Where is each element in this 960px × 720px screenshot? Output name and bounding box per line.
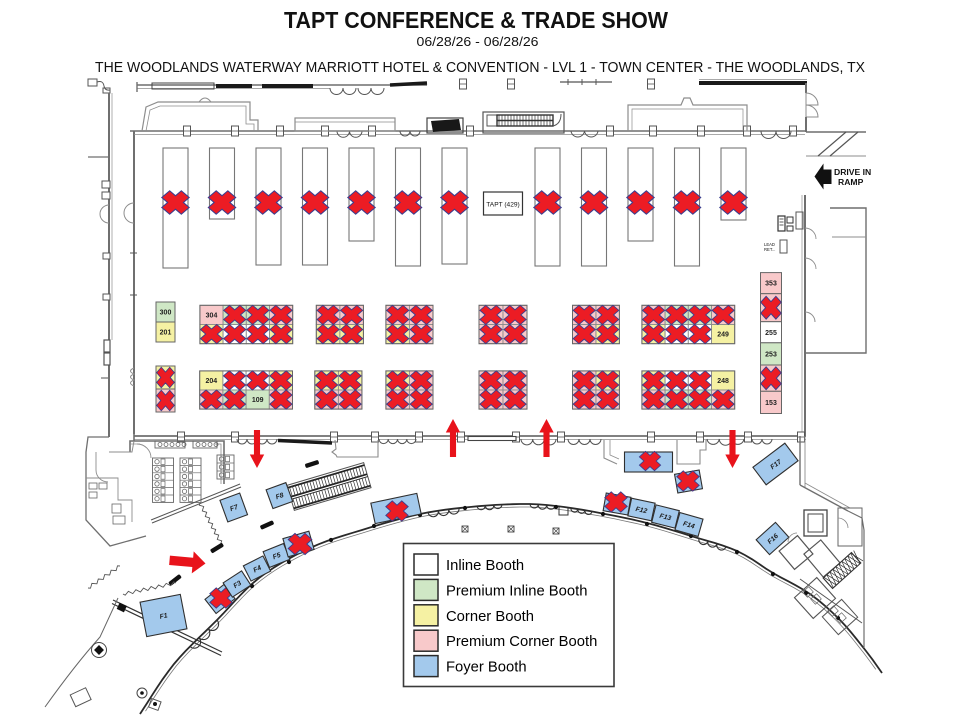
svg-text:204: 204: [205, 378, 217, 385]
svg-text:201: 201: [160, 330, 172, 337]
svg-text:RAMP: RAMP: [838, 177, 864, 187]
svg-text:249: 249: [717, 332, 729, 339]
svg-text:TAPT CONFERENCE & TRADE SHOW: TAPT CONFERENCE & TRADE SHOW: [284, 7, 669, 33]
svg-text:300: 300: [160, 310, 172, 317]
svg-text:RET...: RET...: [764, 247, 775, 252]
svg-text:THE WOODLANDS WATERWAY MARRIOT: THE WOODLANDS WATERWAY MARRIOTT HOTEL & …: [95, 60, 865, 76]
svg-text:06/28/26 - 06/28/26: 06/28/26 - 06/28/26: [417, 34, 539, 49]
svg-text:Inline Booth: Inline Booth: [446, 558, 524, 574]
svg-text:255: 255: [765, 330, 777, 337]
svg-text:253: 253: [765, 351, 777, 358]
svg-text:109: 109: [252, 397, 264, 404]
svg-text:153: 153: [765, 400, 777, 407]
svg-text:Foyer Booth: Foyer Booth: [446, 660, 527, 676]
svg-text:353: 353: [765, 281, 777, 288]
svg-text:DRIVE IN: DRIVE IN: [834, 167, 871, 177]
svg-text:304: 304: [206, 312, 218, 319]
svg-text:Corner Booth: Corner Booth: [446, 609, 534, 625]
svg-text:248: 248: [717, 378, 729, 385]
svg-text:Premium Inline Booth: Premium Inline Booth: [446, 583, 587, 599]
svg-text:TAPT (429): TAPT (429): [486, 202, 519, 209]
svg-text:Premium Corner Booth: Premium Corner Booth: [446, 634, 597, 650]
